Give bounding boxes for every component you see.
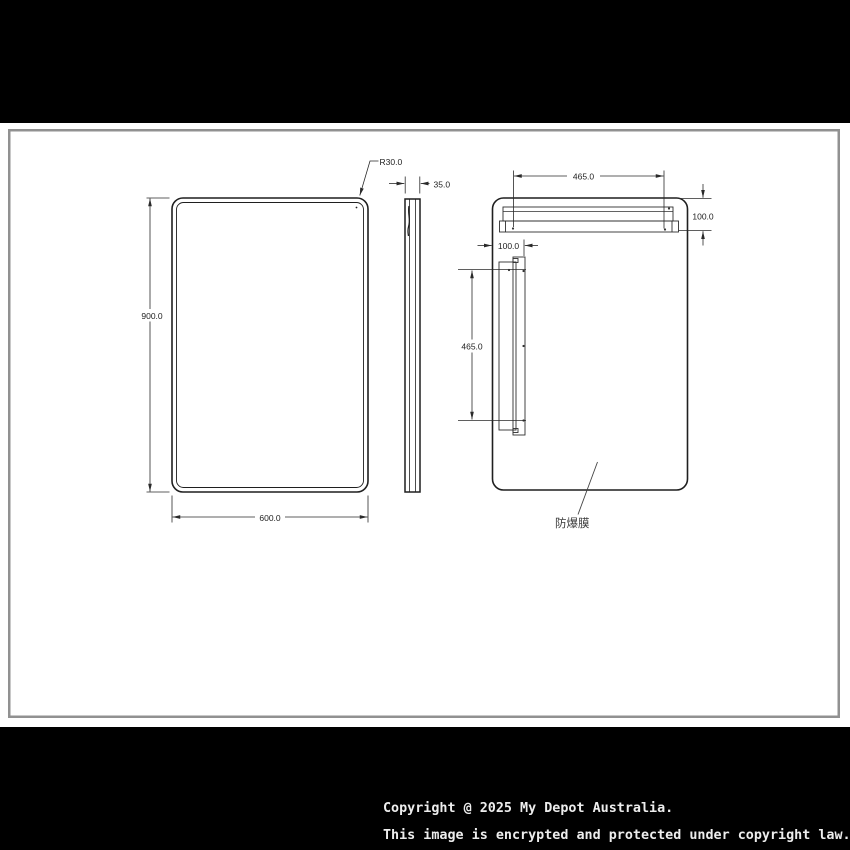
copyright-line-2: This image is encrypted and protected un… xyxy=(383,822,850,849)
mounting-hole xyxy=(522,270,524,272)
film-label: 防爆膜 xyxy=(555,516,590,530)
page: 900.0 600.0 R30.0 35.0 465.0 100.0 100.0… xyxy=(0,0,850,850)
technical-drawing: 900.0 600.0 R30.0 35.0 465.0 100.0 100.0… xyxy=(0,0,850,850)
front-width-label: 600.0 xyxy=(259,513,281,523)
front-sensor-dot xyxy=(356,207,358,209)
copyright-line-1: Copyright @ 2025 My Depot Australia. xyxy=(383,795,850,822)
drawing-sheet xyxy=(9,130,839,717)
mounting-hole xyxy=(512,227,514,229)
corner-radius-label: R30.0 xyxy=(380,157,403,167)
bracket-height-label: 465.0 xyxy=(461,342,483,352)
mounting-hole xyxy=(664,228,666,230)
bracket-width-label: 465.0 xyxy=(573,172,595,182)
left-offset-label: 100.0 xyxy=(498,241,520,251)
side-depth-label: 35.0 xyxy=(434,180,451,190)
mounting-hole xyxy=(522,345,524,347)
mounting-hole xyxy=(668,207,670,209)
front-height-label: 900.0 xyxy=(141,311,163,321)
top-offset-label: 100.0 xyxy=(692,212,714,222)
copyright-footer: Copyright @ 2025 My Depot Australia. Thi… xyxy=(383,795,850,849)
